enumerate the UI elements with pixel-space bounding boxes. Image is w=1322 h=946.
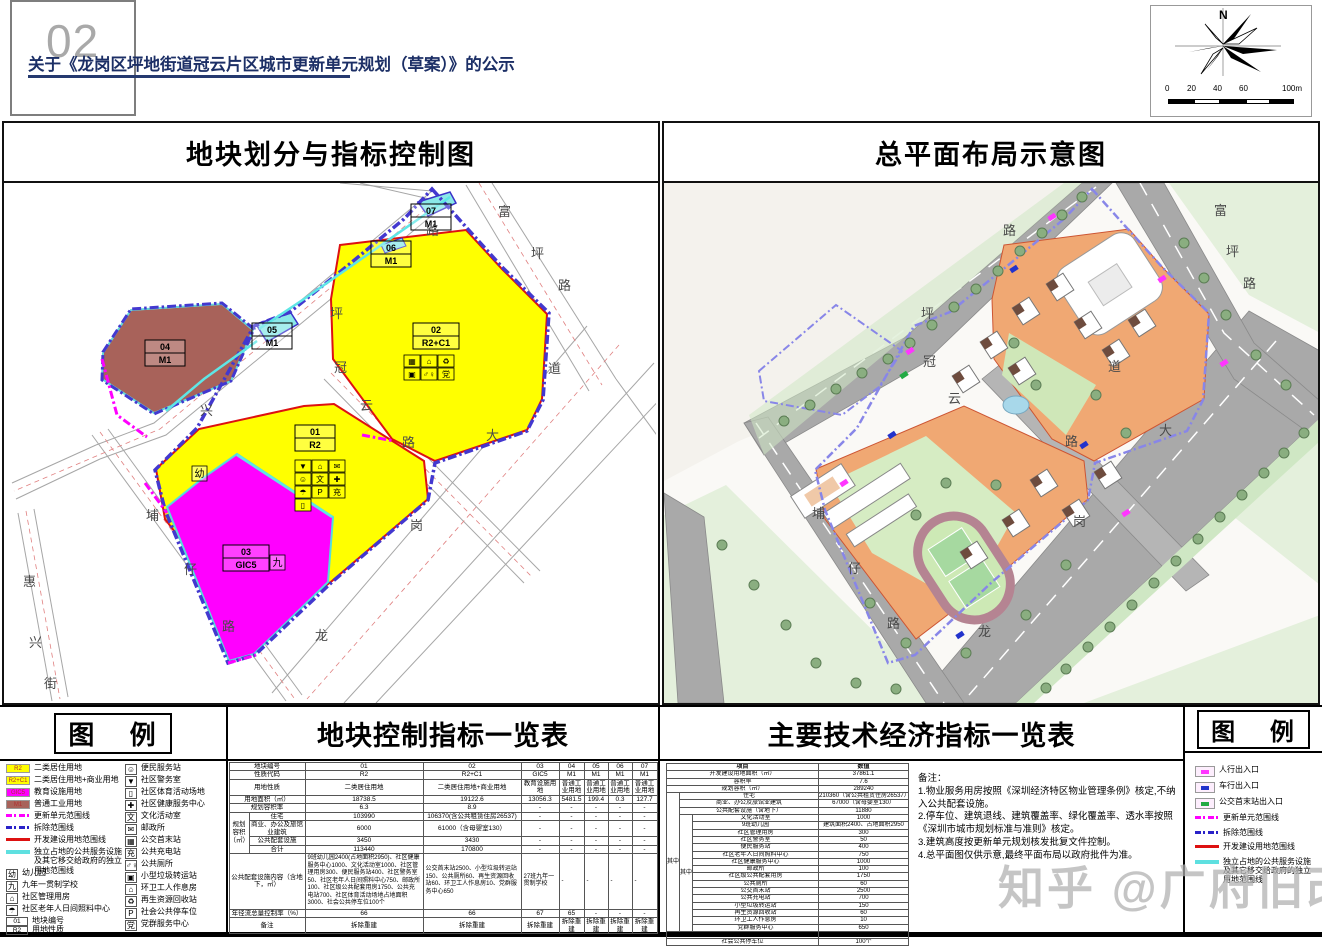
legend-item: ♂♀公共厕所: [125, 859, 224, 870]
party-service-center-icon: 党: [125, 920, 137, 931]
plot-code-sample: R2: [6, 926, 28, 935]
plot-table-cell: -: [632, 804, 657, 812]
school-glyph: 九: [270, 555, 285, 570]
scale-tick-0: 0: [1165, 84, 1169, 93]
svg-text:▦: ▦: [408, 357, 416, 366]
legend-label: 便民服务站: [141, 763, 181, 772]
marker-dot: [1201, 770, 1209, 774]
plot-table-cell: 3430: [423, 837, 521, 845]
plot-table-cell: -: [521, 812, 559, 820]
legend-label: 小型垃圾转运站: [141, 871, 197, 880]
legend-item: ♻再生资源回收站: [125, 895, 224, 906]
tree-icon: [1279, 448, 1289, 458]
span-label-inner: 其中: [680, 815, 693, 932]
plot-id: 07: [426, 206, 436, 216]
legend-label: 社会公共停车位: [141, 907, 197, 916]
tree-icon: [865, 598, 875, 608]
demolition-boundary-icon: [1195, 831, 1219, 834]
elderly-care-icon: ☂: [6, 905, 18, 916]
note-line: 1.物业服务用房按照《深圳经济特区物业管理条例》核定,不纳入公共配套设施。: [918, 786, 1180, 812]
health-center-icon: ✚: [125, 800, 137, 811]
svg-text:▯: ▯: [301, 501, 305, 510]
tree-icon: [1237, 490, 1247, 500]
tree-icon: [781, 620, 791, 630]
pedestrian-entrance-marker-icon: [1195, 766, 1215, 777]
plot-code: M1: [385, 256, 398, 266]
plot01-sports-ground-icon: ▯: [295, 499, 311, 511]
legend-label: 公交首末站: [141, 835, 181, 844]
econ-row-label: 规划容积（㎡）: [667, 785, 819, 792]
plot-table-cell: -: [584, 804, 608, 812]
plot-table-cell: 教育设施用地: [521, 779, 559, 795]
tree-icon: [1083, 642, 1093, 652]
plot-table-cell: 3450: [305, 837, 423, 845]
plot-label-sample-icon: 01R2: [6, 917, 28, 935]
econ-row-value: 50: [819, 836, 909, 843]
road-name-char: 坪: [1226, 244, 1239, 259]
plot-table-cell: 66: [305, 909, 423, 917]
tree-icon: [857, 368, 867, 378]
legend-label: 公共充电站: [141, 847, 181, 856]
econ-row-label: 社区管理用房: [693, 829, 819, 836]
legend-item: ⌂环卫工人作息房: [125, 883, 224, 894]
legend-label: 社区健康服务中心: [141, 799, 205, 808]
scale-bar-segment: [1168, 99, 1194, 104]
econ-row-label: 公共厕所: [693, 880, 819, 887]
row-label: 公共配套设施: [249, 837, 305, 845]
road-name-char: 惠: [23, 574, 36, 589]
plot-table-cell: 106370(含公共租赁住房26537): [423, 812, 521, 820]
plot-table-cell: 公交首末站2500、小型垃圾转运站150、公共厕所60、再生资源回收站60、环卫…: [423, 854, 521, 910]
legend-item: 充公共充电站: [125, 847, 224, 858]
road-name-char: 埔: [146, 508, 159, 523]
legend-label: 二类居住用地+商业用地: [34, 775, 119, 784]
legend-item: ☺便民服务站: [125, 763, 224, 774]
marker-dot: [1201, 786, 1209, 790]
plot-05-label: 05M1: [252, 323, 292, 349]
plot01-post-office-icon: ✉: [329, 460, 345, 472]
econ-row-value: 150: [819, 902, 909, 909]
plot-table-cell: -: [608, 821, 632, 837]
plot-04-label: 04M1: [145, 340, 185, 366]
plot-table-cell: -: [632, 854, 657, 910]
scale-bar-segment: [1246, 99, 1270, 104]
plot02-bus-terminus-icon: ▦: [404, 355, 420, 367]
road-name-char: 仔: [848, 561, 861, 576]
tree-icon: [961, 648, 971, 658]
legend-item: ▼社区警务室: [125, 775, 224, 786]
svg-text:✉: ✉: [334, 462, 341, 471]
plot-id: 02: [431, 325, 441, 335]
zoning-map: 01R202R2+C103GIC504M105M106M107M1▼⌂✉☺文✚☂…: [4, 183, 658, 703]
plot-code: R2: [309, 440, 321, 450]
plot-table-cell: 113440: [305, 845, 423, 853]
plot-table-cell: 65: [559, 909, 584, 917]
legend-label: 地块编号用地性质: [32, 916, 64, 935]
note-line: 2.停车位、建筑退线、建筑覆盖率、绿化覆盖率、透水率按照《深圳市城市规划标准与准…: [918, 811, 1180, 837]
plot-table-cell: 二类居住用地+商业用地: [423, 779, 521, 795]
econ-row-value: 1000: [819, 815, 909, 822]
plot-table-cell: 8.9: [423, 804, 521, 812]
svg-text:✚: ✚: [334, 475, 341, 484]
independent-public-land-boundary-icon: [6, 850, 30, 854]
econ-row-label: 公交首末站: [693, 888, 819, 895]
legend-item: M1普通工业用地: [6, 799, 125, 810]
siteplan-panel-title: 总平面布局示意图: [664, 123, 1318, 183]
plot-table-cell: -: [608, 812, 632, 820]
tree-icon: [1031, 380, 1041, 390]
north-label: N: [1219, 8, 1228, 22]
road-name-char: 路: [1003, 223, 1016, 238]
econ-row-value: 10: [819, 917, 909, 924]
charging-station-icon: 充: [125, 848, 137, 859]
legend-label: 车行出入口: [1219, 781, 1259, 790]
sports-ground-icon: ▯: [125, 788, 137, 799]
econ-header: 项目: [667, 764, 819, 771]
sanitation-rest-room-icon: ⌂: [125, 884, 137, 895]
plot-table-cell: 103990: [305, 812, 423, 820]
plot-table-cell: 拆除重建: [608, 918, 632, 934]
econ-row-value: 210360（含公共租赁住房26537）: [819, 793, 909, 800]
road-name-char: 坪: [330, 306, 343, 321]
plot-table-cell: 二类居住用地: [305, 779, 423, 795]
legend-item: 九九年一贯制学校: [6, 880, 125, 891]
legend-label: 邮政所: [141, 823, 165, 832]
siteplan-map-svg: 富坪路路坪冠云道大路岗龙埔仔路: [664, 183, 1318, 703]
plot01-culture-room-icon: 文: [312, 473, 328, 485]
econ-row-value: 100个: [819, 939, 909, 946]
title-underline: [28, 75, 350, 78]
plot-table-cell: -: [608, 854, 632, 910]
legend-label: 开发建设用地范围线: [34, 835, 106, 844]
legend-item: 人行出入口: [1195, 765, 1318, 777]
legend-label: 社区老年人日间照料中心: [22, 904, 110, 913]
plot-table-cell: 普通工业用地: [584, 779, 608, 795]
tree-icon: [927, 320, 937, 330]
plot-table-cell: 06: [608, 763, 632, 771]
plot-table-cell: 9班幼儿园2400(占地面积2950)、社区健康服务中心1000、文化活动室10…: [305, 854, 423, 910]
legend-item: 开发建设用地范围线: [6, 835, 125, 846]
road-name-char: 路: [1243, 276, 1256, 291]
legend-item: ⌂社区管理用房: [6, 892, 125, 903]
north-arrow-icon: [1151, 6, 1309, 78]
plot-id: 04: [160, 342, 170, 352]
plot-table-cell: 6.3: [305, 804, 423, 812]
plot02-recycling-station-icon: ♻: [438, 355, 454, 367]
legend-item: ▦公交首末站: [125, 835, 224, 846]
plot-table-cell: -: [559, 812, 584, 820]
legend-label: 更新单元范围线: [34, 811, 90, 820]
plot-table-cell: 拆除重建: [584, 918, 608, 934]
tree-icon: [1149, 578, 1159, 588]
econ-row-label: 住宅: [680, 793, 819, 800]
legend-label: 九年一贯制学校: [22, 880, 78, 889]
plot01-charging-station-icon: 充: [329, 486, 345, 498]
road-name-char: 冠: [923, 354, 936, 369]
legend-label: 文化活动室: [141, 811, 181, 820]
plot02-waste-transfer-icon: ▣: [404, 368, 420, 380]
plot-table-cell: -: [632, 821, 657, 837]
road-name-char: 兴: [200, 403, 213, 418]
legend-item: 更新单元范围线: [6, 811, 125, 822]
plot-code: M1: [266, 338, 279, 348]
tree-icon: [891, 684, 901, 694]
econ-row-value: 400: [819, 844, 909, 851]
culture-room-icon: 文: [125, 812, 137, 823]
road-name-char: 富: [1214, 203, 1227, 218]
plot01-elderly-care-icon: ☂: [295, 486, 311, 498]
row-label: 住宅: [249, 812, 305, 820]
plot-table-cell: 05: [584, 763, 608, 771]
legend-item: 公交首末站出入口: [1195, 797, 1318, 809]
road-name-char: 路: [222, 619, 235, 634]
econ-row-value: 100: [819, 866, 909, 873]
road-name-char: 坪: [921, 306, 934, 321]
plot-table-cell: M1: [632, 771, 657, 779]
road-name-char: 大: [1159, 423, 1172, 438]
plot-table-cell: 18738.5: [305, 795, 423, 803]
legend-label: 幼儿园: [22, 868, 46, 877]
legend-item: 党党群服务中心: [125, 919, 224, 930]
plot-table-cell: 普通工业用地: [559, 779, 584, 795]
legend-label: 社区管理用房: [22, 892, 70, 901]
road-name-char: 坪: [531, 246, 544, 261]
tree-icon: [901, 638, 911, 648]
road-name-char: 岗: [410, 518, 423, 533]
road-name-char: 云: [360, 398, 373, 413]
svg-text:P: P: [317, 488, 322, 497]
tree-icon: [779, 416, 789, 426]
plot-table-cell: 199.4: [584, 795, 608, 803]
econ-row-value: 1750: [819, 873, 909, 880]
econ-indicator-table: 项目数值开发建设用地面积（㎡）37861.1容积率7.6规划容积（㎡）28924…: [666, 763, 909, 946]
plot-table-cell: GIC5: [521, 771, 559, 779]
econ-row-label: 环卫工人作息房: [693, 917, 819, 924]
road-name-char: 富: [498, 204, 511, 219]
road-name-char: 冠: [334, 360, 347, 375]
plot-table-cell: -: [608, 804, 632, 812]
plot-table-cell: 03: [521, 763, 559, 771]
span-label-outer: 其中: [667, 793, 680, 932]
legend-label: 再生资源回收站: [141, 895, 197, 904]
community-management-icon: ⌂: [6, 893, 18, 904]
plot-table-cell: -: [521, 845, 559, 853]
plot-02-label: 02R2+C1: [413, 323, 459, 349]
demolition-boundary-icon: [6, 826, 30, 829]
notice-title: 关于《龙岗区坪地街道冠云片区城市更新单元规划（草案）》的公示: [28, 51, 515, 75]
plot-table-title: 地块控制指标一览表: [228, 707, 658, 761]
watermark: 知乎 @广府旧改: [998, 852, 1322, 918]
tree-icon: [1021, 610, 1031, 620]
plot-03-label: 03GIC5: [223, 545, 269, 571]
svg-text:♻: ♻: [442, 357, 449, 366]
road-name-char: 埔: [812, 506, 825, 521]
post-office-icon: ✉: [125, 824, 137, 835]
plot-id: 01: [310, 427, 320, 437]
tree-icon: [993, 266, 1003, 276]
svg-text:⌂: ⌂: [427, 357, 432, 366]
waste-transfer-icon: ▣: [125, 872, 137, 883]
plot-table-cell: 27班九年一贯制学校: [521, 854, 559, 910]
econ-row-label: 党群服务中心: [693, 924, 819, 931]
plot-table-cell: -: [584, 845, 608, 853]
legend-item: 文文化活动室: [125, 811, 224, 822]
plot-table-cell: -: [584, 837, 608, 845]
econ-row-value: 11880: [819, 807, 909, 814]
plot-table-cell: -: [559, 837, 584, 845]
legend-item: ✉邮政所: [125, 823, 224, 834]
econ-row-value: 2500: [819, 888, 909, 895]
plot-table-cell: -: [521, 821, 559, 837]
legend-item: P社会公共停车位: [125, 907, 224, 918]
legend-label: 党群服务中心: [141, 919, 189, 928]
note-line: 3.建筑高度按更新单元规划核发批复文件控制。: [918, 837, 1180, 850]
recycling-station-icon: ♻: [125, 896, 137, 907]
kindergarten-glyph: 幼: [192, 466, 207, 481]
plot-table-cell: 19122.6: [423, 795, 521, 803]
tree-icon: [1091, 390, 1101, 400]
row-label: 备注: [229, 918, 305, 934]
svg-text:▼: ▼: [299, 462, 307, 471]
plot-table-cell: 0.3: [608, 795, 632, 803]
vehicle-entrance-marker-icon: [1195, 782, 1215, 793]
legend-label-line: 用地性质: [32, 925, 64, 934]
tree-icon: [1259, 468, 1269, 478]
plot-table-cell: 02: [423, 763, 521, 771]
econ-row-label: 社区警务室: [693, 836, 819, 843]
tree-icon: [805, 400, 815, 410]
scale-bar-segment: [1220, 99, 1246, 104]
renewal-unit-boundary-icon: [6, 814, 30, 817]
legend-label: 教育设施用地: [34, 787, 82, 796]
legend-label: 公共厕所: [141, 859, 173, 868]
tree-icon: [851, 678, 861, 688]
tree-icon: [911, 510, 921, 520]
scale-tick-100: 100m: [1282, 84, 1302, 93]
plot-table-cell: 拆除重建: [423, 918, 521, 934]
tree-icon: [811, 658, 821, 668]
tree-icon: [1221, 310, 1231, 320]
row-label: 地块编号: [229, 763, 305, 771]
industrial-landuse-swatch: M1: [6, 800, 30, 809]
plot-table-cell: -: [632, 837, 657, 845]
econ-row-value: 占地面积3000: [819, 931, 909, 938]
road-name-char: 路: [558, 278, 571, 293]
econ-row-label: 开发建设用地面积（㎡）: [667, 771, 819, 778]
svg-text:充: 充: [333, 487, 341, 497]
row-label: 商业、办公及旅馆业建筑: [249, 821, 305, 837]
road-name-char: 路: [402, 435, 415, 450]
legend-left: 图 例 R2二类居住用地R2+C1二类居住用地+商业用地GIC5教育设施用地M1…: [0, 707, 228, 932]
legend-label: 更新单元范围线: [1223, 813, 1279, 822]
plot-table-cell: -: [559, 845, 584, 853]
renewal-unit-boundary-icon: [1195, 816, 1219, 819]
plot-table-cell: 普通工业用地: [632, 779, 657, 795]
tree-icon: [1199, 273, 1209, 283]
plot02-public-toilet-icon: ♂♀: [421, 368, 437, 380]
plot-table-cell: M1: [608, 771, 632, 779]
tree-icon: [749, 580, 759, 590]
road-name-char: 街: [44, 676, 57, 691]
plot01-convenience-station-icon: ☺: [295, 473, 311, 485]
legend-label: 公交首末站出入口: [1219, 797, 1283, 806]
plot01-public-parking-icon: P: [312, 486, 328, 498]
plot-table-cell: 拆除重建: [521, 918, 559, 934]
plot-01-label: 01R2: [295, 425, 335, 451]
tree-icon: [883, 354, 893, 364]
row-label: 性质代码: [229, 771, 305, 779]
plot-table-cell: 04: [559, 763, 584, 771]
svg-text:☺: ☺: [299, 475, 307, 484]
plot-table-cell: M1: [584, 771, 608, 779]
row-group-label: 规划容积（㎡）: [229, 812, 249, 853]
plot-table-cell: -: [608, 909, 632, 917]
tree-icon: [1077, 192, 1087, 202]
tree-icon: [1171, 556, 1181, 566]
public-parking-icon: P: [125, 908, 137, 919]
development-land-boundary-icon: [6, 838, 30, 841]
plot-table-cell: -: [521, 837, 559, 845]
tree-icon: [1061, 560, 1071, 570]
econ-row-value: 建筑面积2400、占地面积2950: [819, 822, 909, 829]
plot02-community-house-icon: ⌂: [421, 355, 437, 367]
plot-table-cell: 拆除重建: [559, 918, 584, 934]
plot-code: GIC5: [235, 560, 256, 570]
tree-icon: [1037, 228, 1047, 238]
tree-icon: [991, 480, 1001, 490]
convenience-station-icon: ☺: [125, 764, 137, 775]
plot-id: 05: [267, 325, 277, 335]
legend-item: ▣小型垃圾转运站: [125, 871, 224, 882]
econ-row-label: 社区体育活动场地: [667, 931, 819, 938]
svg-text:文: 文: [316, 474, 324, 484]
education-landuse-swatch: GIC5: [6, 788, 30, 797]
svg-text:♂♀: ♂♀: [423, 370, 435, 379]
svg-text:党: 党: [442, 369, 450, 379]
econ-row-label: 再生资源回收站: [693, 909, 819, 916]
tree-icon: [1281, 380, 1291, 390]
econ-row-label: 社区级公共配套用房: [693, 873, 819, 880]
road-name-char: 云: [948, 391, 961, 406]
plot-table-cell: R2+C1: [423, 771, 521, 779]
plot-table-cell: 普通工业用地: [608, 779, 632, 795]
road-name-char: 龙: [978, 624, 991, 639]
econ-row-value: 7.6: [819, 778, 909, 785]
plot-table-cell: -: [584, 854, 608, 910]
plot-table-cell: 5481.5: [559, 795, 584, 803]
road-name-char: 道: [548, 361, 561, 376]
plot-id: 03: [241, 547, 251, 557]
econ-row-value: 60: [819, 880, 909, 887]
row-label: 用地面积（㎡）: [229, 795, 305, 803]
tree-icon: [717, 540, 727, 550]
legend-item: 拆除范围线: [6, 823, 125, 834]
road-name-char: 道: [1108, 359, 1121, 374]
plot-table-cell: 拆除重建: [305, 918, 423, 934]
legend-item: 01R2地块编号用地性质: [6, 916, 125, 929]
econ-row-value: 650: [819, 924, 909, 931]
legend-item: ▯社区体育活动场地: [125, 787, 224, 798]
plot-table-cell: -: [632, 909, 657, 917]
road-name-char: 岗: [1073, 514, 1086, 529]
road-name-char: 路: [887, 616, 900, 631]
econ-row-value: 67000（含母婴室130）: [819, 800, 909, 807]
public-toilet-icon: ♂♀: [125, 860, 137, 871]
row-label: 年径流总量控制率（%）: [229, 909, 305, 917]
tree-icon: [1121, 428, 1131, 438]
plot-table-cell: 66: [423, 909, 521, 917]
road-name-char: 龙: [315, 628, 328, 643]
